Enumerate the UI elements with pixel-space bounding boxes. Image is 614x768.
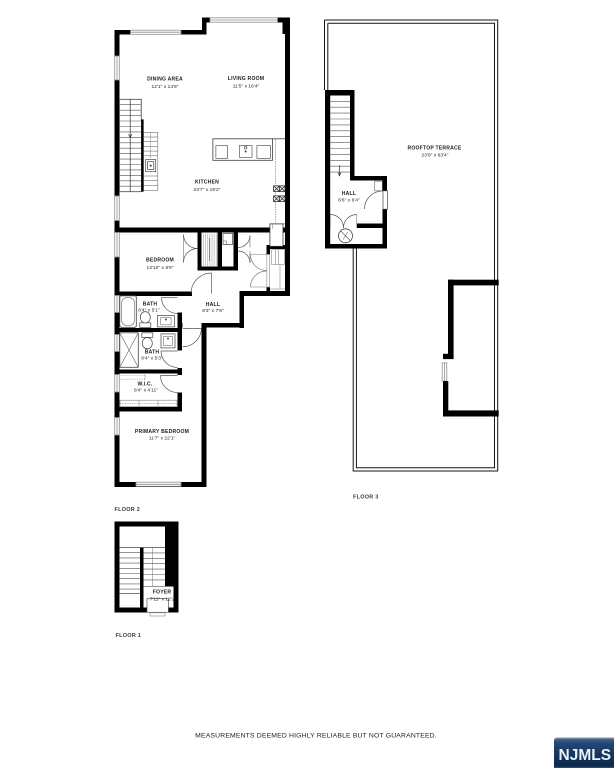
svg-text:7'11" x 12'2": 7'11" x 12'2" [150,597,177,603]
svg-text:FOYER: FOYER [153,590,172,596]
svg-text:HALL: HALL [206,302,220,308]
svg-text:ROOFTOP TERRACE: ROOFTOP TERRACE [407,146,461,152]
svg-text:HALL: HALL [342,191,356,197]
svg-text:23'9" x 63'4": 23'9" x 63'4" [422,153,449,159]
svg-text:PRIMARY BEDROOM: PRIMARY BEDROOM [135,429,189,435]
svg-text:FLOOR 2: FLOOR 2 [115,507,141,513]
svg-text:6'6" x 6'4": 6'6" x 6'4" [338,198,360,204]
svg-text:11'7" x 22'1": 11'7" x 22'1" [149,436,176,442]
svg-text:KITCHEN: KITCHEN [195,180,219,186]
svg-text:BEDROOM: BEDROOM [146,258,174,264]
svg-text:23'7" x 15'2": 23'7" x 15'2" [194,187,221,193]
svg-text:LIVING ROOM: LIVING ROOM [228,76,264,82]
svg-text:MEASUREMENTS DEEMED HIGHLY REL: MEASUREMENTS DEEMED HIGHLY RELIABLE BUT … [195,733,437,740]
svg-text:13'10" x 8'9": 13'10" x 8'9" [147,265,174,271]
svg-text:DINING AREA: DINING AREA [147,77,183,83]
svg-text:W.I.C.: W.I.C. [137,382,152,388]
svg-text:BATH: BATH [145,350,160,356]
svg-text:NJMLS: NJMLS [559,747,612,764]
svg-text:BATH: BATH [143,302,158,308]
svg-text:8'4" x 5'1": 8'4" x 5'1" [138,308,160,314]
svg-text:FLOOR 1: FLOOR 1 [116,633,142,639]
svg-text:11'5" x 16'4": 11'5" x 16'4" [233,84,260,90]
svg-text:FLOOR 3: FLOOR 3 [353,495,379,501]
svg-text:8'3" x 7'8": 8'3" x 7'8" [202,308,224,314]
svg-text:12'1" x 14'8": 12'1" x 14'8" [152,84,179,90]
svg-text:8'4" x 4'11": 8'4" x 4'11" [134,388,158,394]
svg-text:8'4" x 5'3": 8'4" x 5'3" [141,356,163,362]
